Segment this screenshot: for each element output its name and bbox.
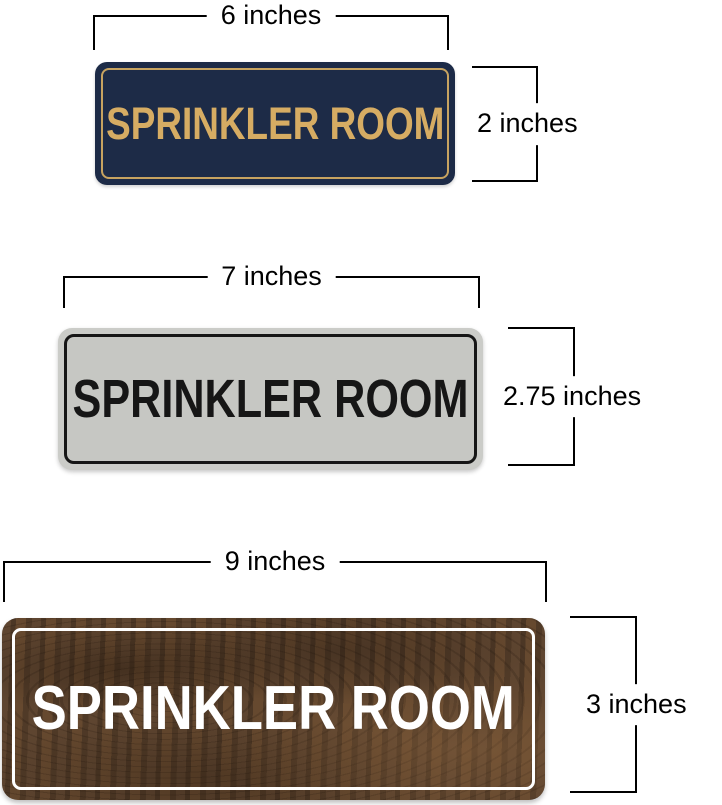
width-dimension-label-sign2: 7 inches xyxy=(207,262,336,292)
sprinkler-sign-wood: SPRINKLER ROOM xyxy=(2,618,545,800)
height-dimension-line-sign1: 2 inches xyxy=(472,66,538,182)
height-dimension-label-sign3: 3 inches xyxy=(584,684,689,726)
sprinkler-sign-silver: SPRINKLER ROOM xyxy=(58,328,483,470)
sign-inner-border-navy: SPRINKLER ROOM xyxy=(101,68,449,179)
height-dimension-label-sign1: 2 inches xyxy=(475,103,580,145)
sign-inner-border-wood: SPRINKLER ROOM xyxy=(12,628,535,790)
sign-text-silver: SPRINKLER ROOM xyxy=(72,372,468,426)
height-dimension-label-sign2: 2.75 inches xyxy=(501,376,643,418)
height-dimension-line-sign2: 2.75 inches xyxy=(508,327,575,466)
width-dimension-line-sign2: 7 inches xyxy=(63,276,480,308)
width-dimension-line-sign3: 9 inches xyxy=(3,561,547,602)
product-dimensions-image: 6 inches SPRINKLER ROOM 2 inches 7 inche… xyxy=(0,0,722,805)
sign-text-navy: SPRINKLER ROOM xyxy=(106,101,444,146)
width-dimension-label-sign3: 9 inches xyxy=(211,547,340,577)
width-dimension-label-sign1: 6 inches xyxy=(207,1,336,31)
sprinkler-sign-navy: SPRINKLER ROOM xyxy=(95,62,455,185)
sign-inner-border-silver: SPRINKLER ROOM xyxy=(64,334,477,464)
height-dimension-line-sign3: 3 inches xyxy=(570,616,637,793)
width-dimension-line-sign1: 6 inches xyxy=(93,15,449,50)
sign-text-wood: SPRINKLER ROOM xyxy=(32,678,515,740)
